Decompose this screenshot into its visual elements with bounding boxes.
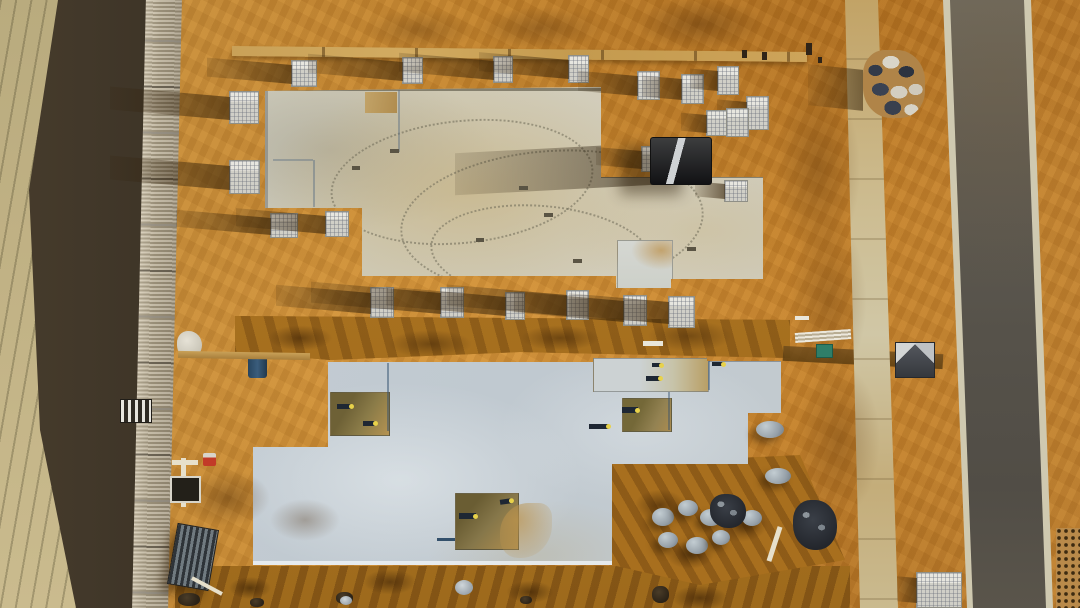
plumbing-pipe (500, 498, 513, 505)
slab-mark (687, 247, 696, 251)
rock-mound (765, 468, 791, 484)
brick-pallet (746, 96, 769, 130)
red-marker (203, 453, 216, 466)
rock-mound (658, 532, 678, 548)
plumbing-pipe (363, 421, 376, 426)
slab-mark (519, 186, 528, 190)
rock-mound (686, 537, 708, 554)
debris (178, 593, 200, 606)
brick-pallet (229, 160, 260, 194)
debris (652, 586, 669, 603)
brick-pallet (916, 572, 962, 608)
slab-mark (544, 213, 553, 217)
green-crate (816, 344, 833, 358)
slab-mark (476, 238, 484, 242)
dark-rubble (710, 494, 746, 528)
timber-plank (178, 351, 310, 360)
white-bit (795, 316, 809, 320)
rock-mound (712, 530, 730, 545)
brick-pallet (717, 66, 739, 95)
debris (250, 598, 264, 607)
brick-pallet (229, 91, 259, 124)
pvc-pipe-bundle (795, 329, 852, 343)
standpipe-horizontal (172, 460, 198, 465)
slab-mark (573, 259, 582, 263)
stone (455, 580, 473, 595)
brick-pallet (724, 180, 748, 202)
plumbing-pipe (646, 376, 661, 381)
plumbing-pipe (712, 362, 724, 366)
survey-peg (818, 57, 822, 63)
survey-peg (742, 50, 747, 58)
rock-mound (678, 500, 698, 516)
stone (340, 596, 352, 605)
stick (767, 526, 783, 562)
brick-pallet (726, 108, 749, 137)
plumbing-pipe (589, 424, 609, 429)
brick-pallet (668, 296, 695, 328)
small-shelter (895, 342, 935, 378)
rock-mound (652, 508, 674, 526)
slab-mark (390, 149, 399, 153)
plumbing-pipe (337, 404, 352, 409)
brick-pallet (325, 211, 349, 237)
brick-rubble-pile (863, 50, 925, 118)
telehandler (650, 137, 712, 185)
dark-rubble (793, 500, 837, 550)
rock-mound (756, 421, 784, 438)
brick-pallet (706, 110, 727, 136)
site-objects-layer (0, 0, 1080, 608)
aerial-construction-site-photo (0, 0, 1080, 608)
slab-mark (352, 166, 360, 170)
debris (520, 596, 532, 604)
plumbing-pipe (622, 407, 638, 413)
white-bit (643, 341, 663, 346)
survey-peg (762, 52, 767, 60)
dark-panel (170, 476, 201, 503)
plumbing-pipe (459, 513, 476, 519)
survey-peg (806, 43, 812, 55)
plumbing-pipe (652, 363, 662, 367)
